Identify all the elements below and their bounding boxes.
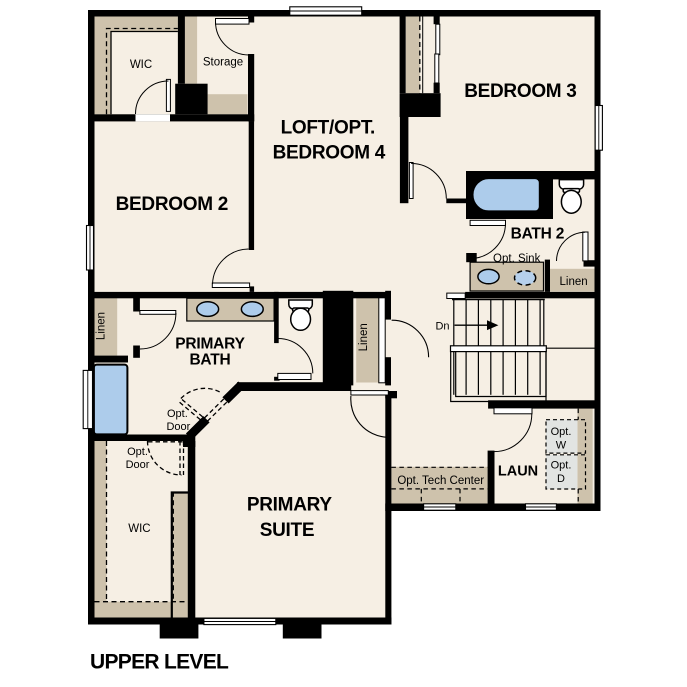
svg-text:Opt.: Opt. xyxy=(127,446,148,458)
svg-text:PRIMARY: PRIMARY xyxy=(175,335,245,352)
svg-text:UPPER LEVEL: UPPER LEVEL xyxy=(90,650,229,673)
svg-text:Door: Door xyxy=(126,459,150,471)
svg-text:Opt.: Opt. xyxy=(551,426,572,438)
svg-text:Storage: Storage xyxy=(203,57,243,69)
svg-text:LAUN: LAUN xyxy=(498,463,538,479)
svg-text:BATH 2: BATH 2 xyxy=(511,226,565,243)
svg-text:BEDROOM 3: BEDROOM 3 xyxy=(464,81,576,102)
svg-text:Dn: Dn xyxy=(435,320,449,332)
svg-text:BEDROOM 2: BEDROOM 2 xyxy=(116,194,228,215)
svg-text:Opt. Sink: Opt. Sink xyxy=(493,253,541,265)
svg-text:BEDROOM 4: BEDROOM 4 xyxy=(273,143,386,164)
svg-text:W: W xyxy=(556,440,567,452)
svg-text:D: D xyxy=(557,473,565,485)
svg-text:Opt.: Opt. xyxy=(551,460,572,472)
svg-text:WIC: WIC xyxy=(128,523,150,535)
svg-text:Opt.: Opt. xyxy=(167,408,188,420)
svg-text:Linen: Linen xyxy=(95,312,107,340)
svg-text:Linen: Linen xyxy=(560,276,588,288)
svg-text:Door: Door xyxy=(166,421,190,433)
svg-text:BATH: BATH xyxy=(189,351,230,368)
svg-text:SUITE: SUITE xyxy=(260,520,314,541)
svg-text:LOFT/OPT.: LOFT/OPT. xyxy=(281,117,375,138)
svg-text:WIC: WIC xyxy=(130,59,152,71)
svg-text:Linen: Linen xyxy=(358,323,370,351)
svg-text:PRIMARY: PRIMARY xyxy=(247,495,332,516)
svg-text:Opt. Tech Center: Opt. Tech Center xyxy=(397,475,484,487)
